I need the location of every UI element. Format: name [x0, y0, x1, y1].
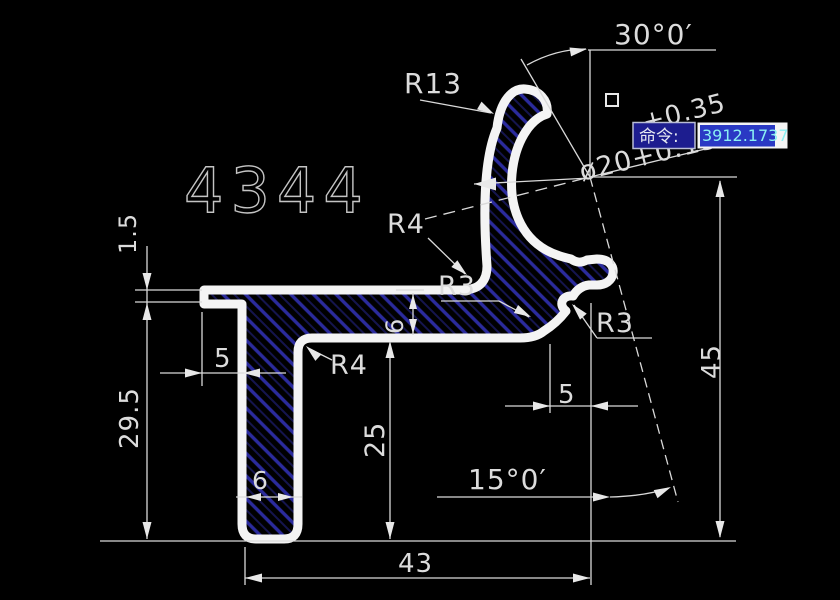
dim-6-mid-label[interactable]: 6 [381, 318, 409, 334]
dim-angle-15-label[interactable]: 15°0′ [468, 463, 547, 496]
dim-r4-upper-label[interactable]: R4 [387, 209, 425, 240]
cad-canvas[interactable]: 4344 R13 R4 R3 R3 R4 30°0′ 15°0′ +0.35 ø… [0, 0, 840, 600]
command-value[interactable]: 3912.1737 [702, 126, 789, 145]
dim-r4-lower-label[interactable]: R4 [330, 350, 368, 381]
command-label: 命令: [639, 127, 679, 147]
dim-25-label[interactable]: 25 [360, 422, 391, 458]
dim-5-right-label[interactable]: 5 [558, 380, 576, 410]
dim-r3-right-label[interactable]: R3 [596, 308, 634, 339]
dim-5-left-label[interactable]: 5 [214, 344, 232, 374]
dim-1-5-label[interactable]: 1.5 [114, 213, 142, 254]
dim-6-leg-label[interactable]: 6 [252, 466, 269, 495]
dim-angle-30-label[interactable]: 30°0′ [614, 18, 693, 51]
drawing-viewport: 4344 R13 R4 R3 R3 R4 30°0′ 15°0′ +0.35 ø… [0, 0, 840, 600]
dim-29-5-label[interactable]: 29.5 [115, 387, 145, 449]
dim-45-label[interactable]: 45 [697, 344, 727, 379]
dim-r13-label[interactable]: R13 [404, 67, 462, 100]
dim-43-label[interactable]: 43 [398, 549, 433, 579]
dim-r3-middle-label[interactable]: R3 [438, 271, 476, 302]
command-input[interactable]: 命令: 3912.1737 [633, 123, 789, 149]
part-number-text[interactable]: 4344 [184, 154, 370, 227]
